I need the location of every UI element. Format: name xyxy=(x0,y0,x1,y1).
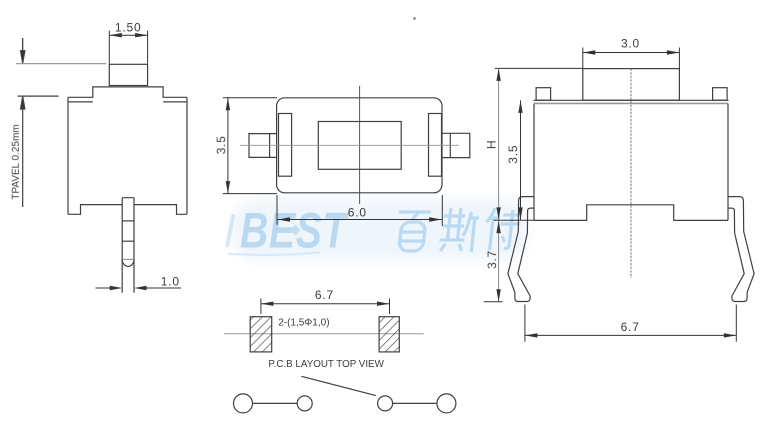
svg-text:3.5: 3.5 xyxy=(506,145,520,164)
svg-text:H: H xyxy=(485,140,499,149)
svg-text:3.5: 3.5 xyxy=(214,135,228,154)
svg-text:1.0: 1.0 xyxy=(161,274,180,288)
svg-text:3.0: 3.0 xyxy=(621,37,640,51)
svg-text:6.7: 6.7 xyxy=(621,320,640,334)
svg-text:2-(1,5Φ1,0): 2-(1,5Φ1,0) xyxy=(278,318,329,329)
svg-text:TPAVEL 0.25mm: TPAVEL 0.25mm xyxy=(11,124,22,199)
svg-text:6.0: 6.0 xyxy=(348,206,367,220)
svg-text:P.C.B LAYOUT TOP VIEW: P.C.B LAYOUT TOP VIEW xyxy=(268,359,384,370)
svg-text:6.7: 6.7 xyxy=(315,288,334,302)
svg-text:1.50: 1.50 xyxy=(115,21,142,35)
svg-text:3.7: 3.7 xyxy=(485,250,499,269)
